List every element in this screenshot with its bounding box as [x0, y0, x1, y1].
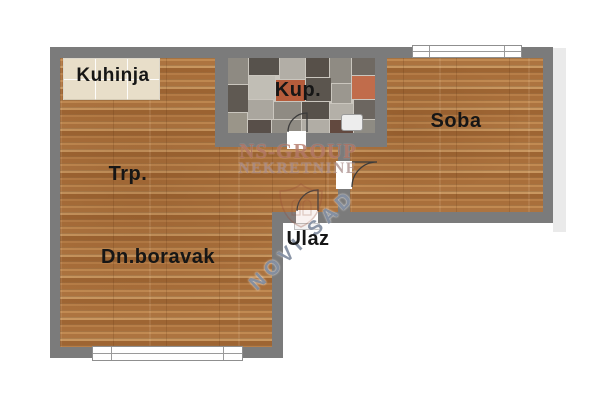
floor-plan: NS-GROUP NEKRETNINE NOVI SAD Kuhinja Kup…	[0, 0, 600, 406]
door-threshold-bathroom	[287, 131, 306, 149]
bathroom-sink	[341, 114, 363, 131]
window-divider-left	[429, 46, 430, 57]
window-line	[93, 353, 242, 354]
window-living	[92, 346, 243, 361]
wall-bathroom-left	[215, 47, 228, 147]
right-shadow	[553, 48, 566, 232]
door-threshold-bedroom	[336, 161, 352, 189]
wall-bathroom-bottom-a	[215, 133, 287, 147]
room-label-kitchen: Kuhinja	[63, 65, 163, 87]
room-label-living: Dn.boravak	[88, 246, 228, 268]
watermark-shield-logo	[276, 182, 326, 228]
room-label-dining: Trp.	[88, 163, 168, 185]
window-divider-right	[504, 46, 505, 57]
wall-bedroom-bottom	[338, 212, 553, 223]
wall-right	[543, 47, 553, 223]
room-label-entrance: Ulaz	[268, 228, 348, 250]
room-label-bathroom: Kup.	[258, 79, 338, 101]
window-bedroom	[412, 45, 522, 58]
room-label-bedroom: Soba	[406, 110, 506, 132]
window-divider-left	[111, 347, 112, 360]
wall-left	[50, 47, 60, 358]
wall-bathroom-right	[375, 47, 387, 147]
window-divider-right	[223, 347, 224, 360]
